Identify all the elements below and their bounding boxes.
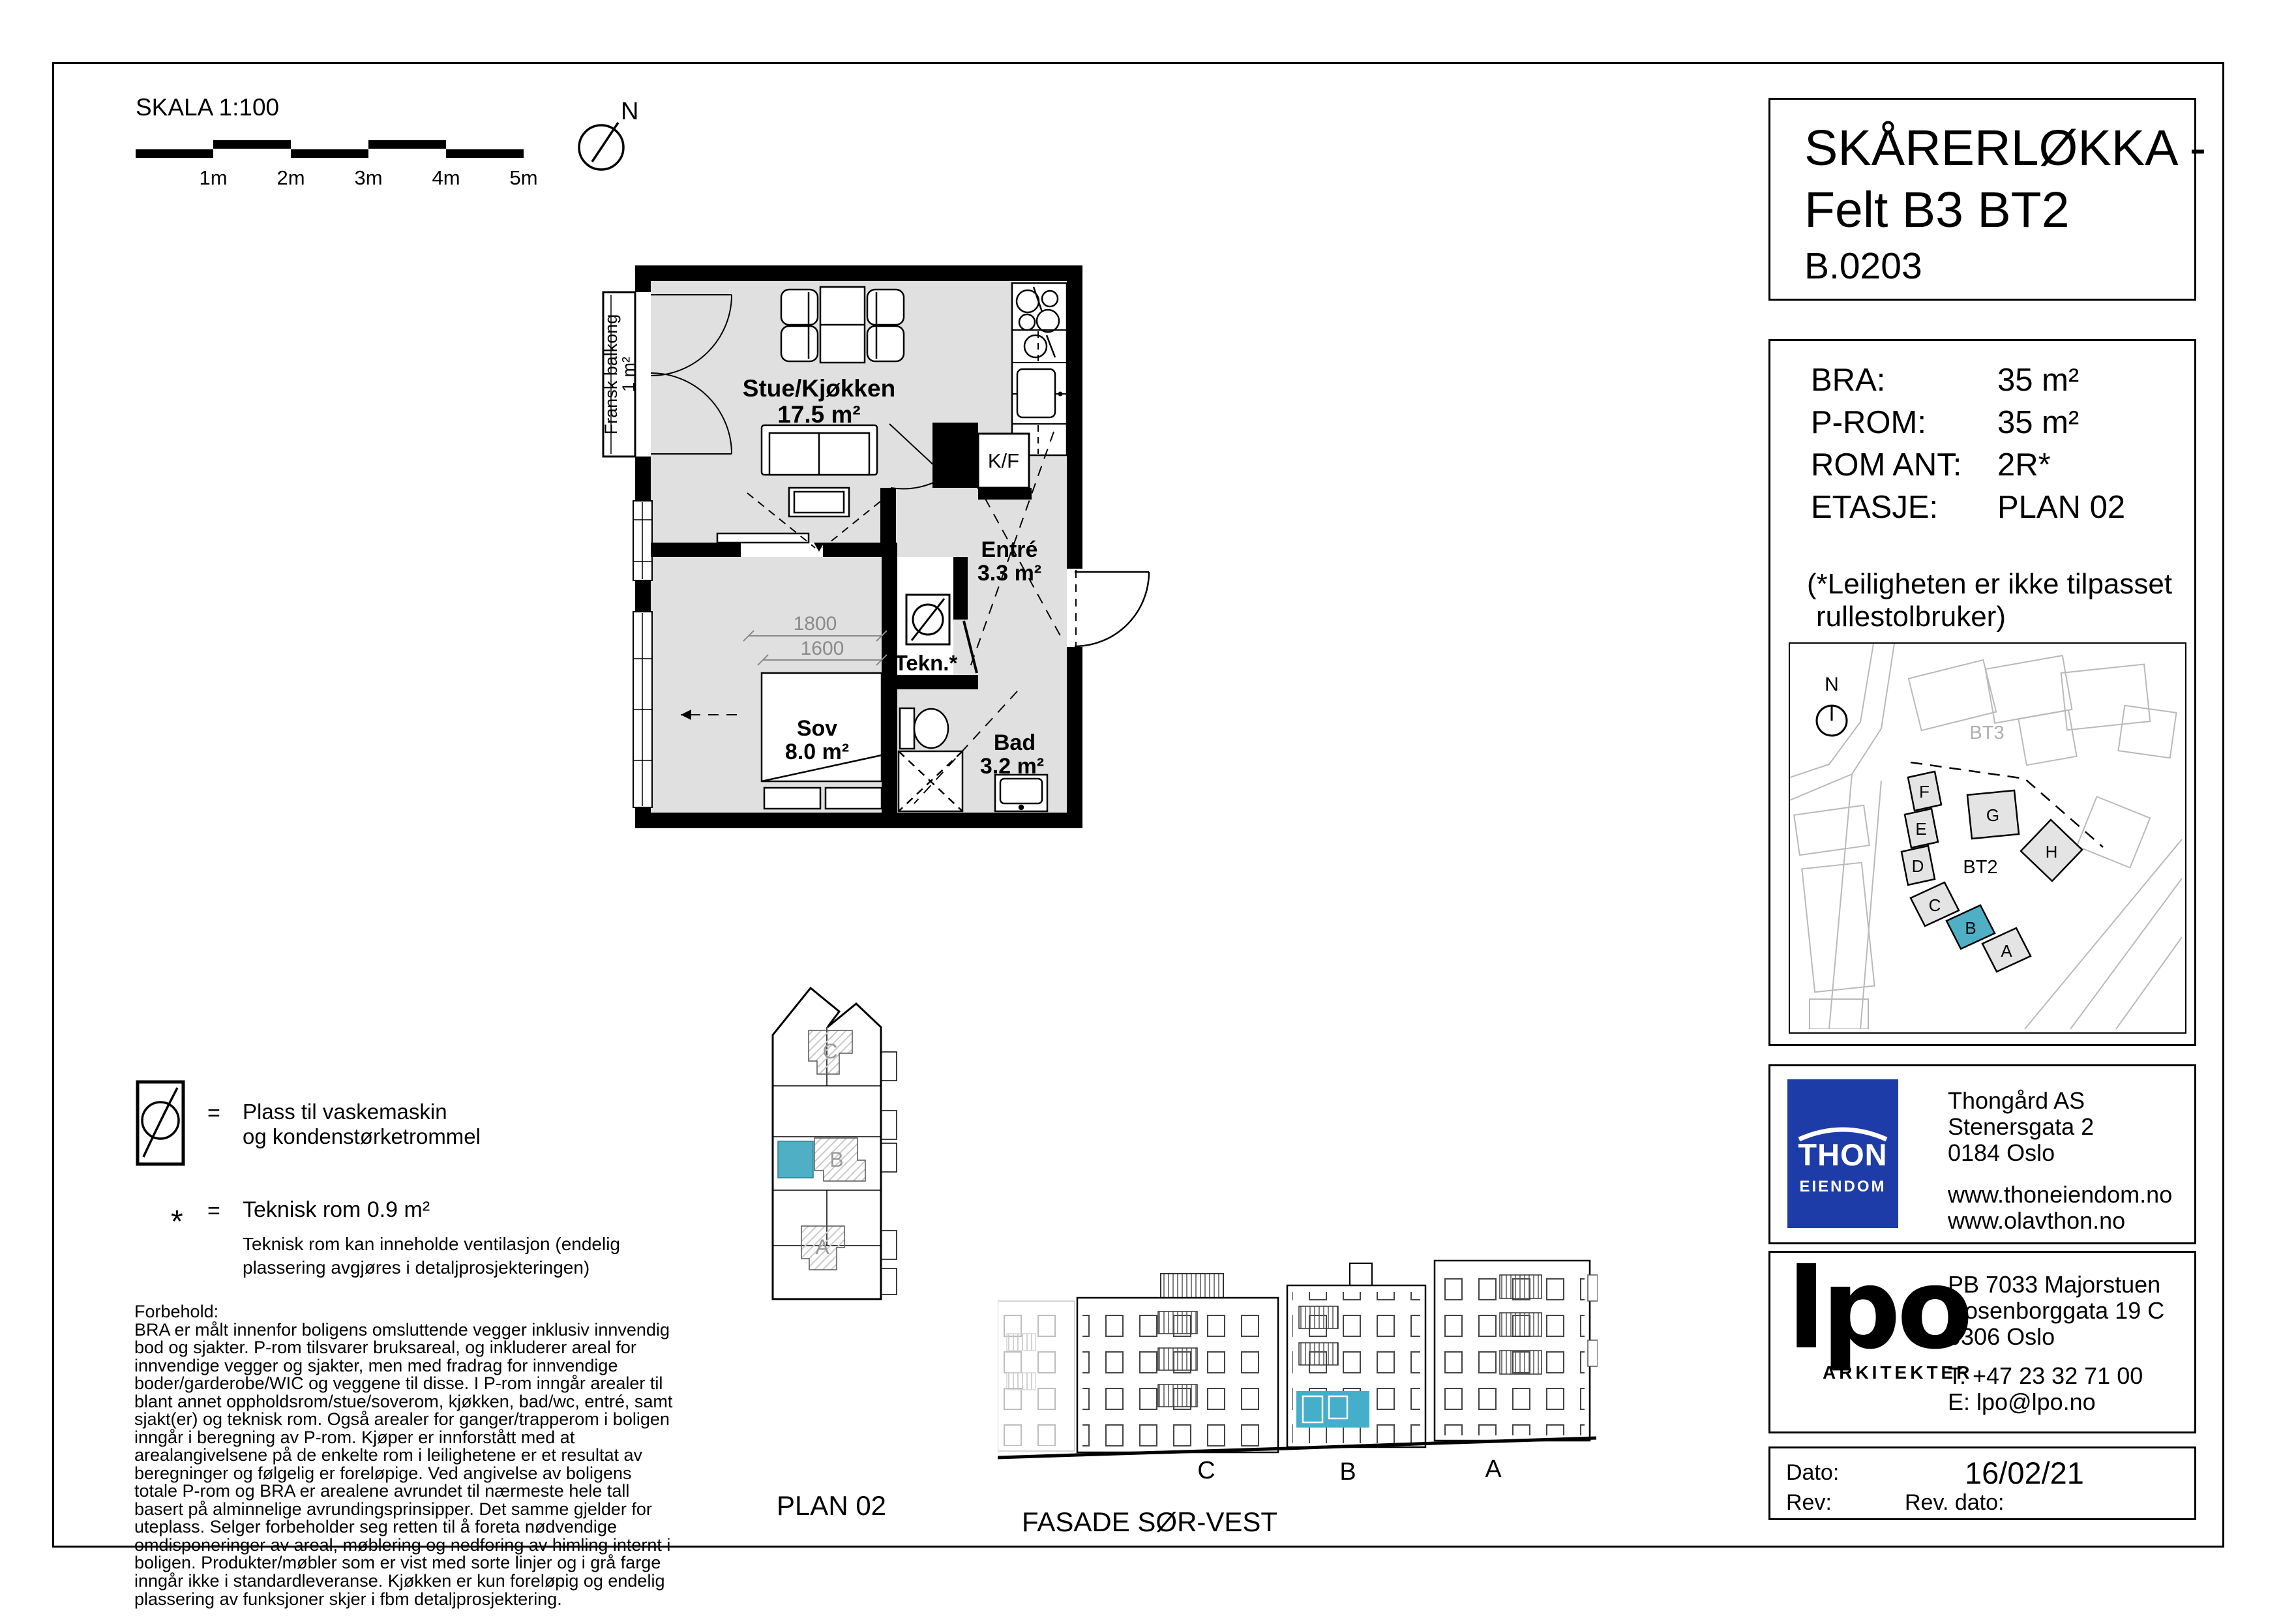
owner-addr2: 0184 Oslo (1948, 1139, 2055, 1167)
window (633, 612, 652, 807)
facade-b: B (1339, 1458, 1356, 1484)
wheelchair-note-1: (*Leiligheten er ikke tilpasset (1807, 568, 2172, 601)
dim-1600: 1600 (801, 638, 844, 659)
arrowhead (814, 543, 824, 552)
info-label-prom: P-ROM: (1811, 404, 1926, 441)
highlighted-apartment (778, 1141, 813, 1178)
key-plan-a: A (815, 1235, 829, 1259)
info-value-etasje: PLAN 02 (1997, 489, 2125, 526)
toilet-icon (900, 708, 948, 749)
facade-label: FASADE SØR-VEST (1022, 1506, 1277, 1538)
project-title-line2: Felt B3 BT2 (1804, 181, 2070, 239)
scale-tick-3m: 3m (342, 166, 395, 190)
room-label-entre: Entré (981, 537, 1038, 562)
info-value-bra: 35 m² (1997, 362, 2079, 398)
balcony-label: Fransk balkong 1 m² (603, 292, 635, 457)
key-plan: C B A (760, 975, 916, 1304)
site-plan-frame: BT3 BT2 F E D C B A G (1789, 642, 2186, 1034)
wheelchair-note-2: rullestolbruker) (1816, 601, 2006, 633)
legend-text-2b: Teknisk rom kan inneholde ventilasjon (e… (243, 1234, 620, 1255)
room-label-stue: Stue/Kjøkken (743, 375, 895, 402)
revision-block: Dato: 16/02/21 Rev: Rev. dato: (1768, 1446, 2196, 1520)
info-label-romant: ROM ANT: (1811, 447, 1961, 483)
disclaimer-heading: Forbehold: (134, 1303, 676, 1321)
architect-phone: T: +47 23 32 71 00 (1948, 1362, 2143, 1390)
dining-set (781, 287, 904, 363)
owner-name: Thongård AS (1948, 1087, 2085, 1115)
room-area-sov: 8.0 m² (785, 740, 849, 764)
tv-bench (789, 488, 849, 517)
room-area-bad: 3.2 m² (980, 754, 1044, 779)
architect-email: E: lpo@lpo.no (1948, 1388, 2096, 1416)
date-label: Dato: (1786, 1460, 1839, 1486)
site-plan: BT3 BT2 F E D C B A G (1790, 644, 2182, 1029)
site-letter-a: A (2001, 941, 2012, 961)
site-bt2: BT2 (1963, 857, 1997, 878)
disclaimer-body: BRA er målt innenfor boligens omsluttend… (134, 1321, 676, 1609)
site-letter-g: G (1986, 805, 1999, 825)
floor-plan: 1800 1600 Stue/Kjøkken 17.5 m² Entré 3.3… (587, 248, 1174, 848)
info-label-etasje: ETASJE: (1811, 489, 1938, 526)
facade-building-c (1077, 1274, 1278, 1452)
room-label-sov: Sov (797, 716, 837, 741)
facade-c: C (1197, 1457, 1215, 1484)
legend-text-1a: Plass til vaskemaskin (243, 1100, 447, 1124)
key-plan-label: PLAN 02 (756, 1490, 906, 1521)
entry-door (1075, 570, 1149, 646)
appliance-icon (1017, 369, 1055, 417)
site-letter-d: D (1912, 856, 1924, 876)
room-label-tekn: Tekn.* (895, 651, 958, 675)
architect-addr1: PB 7033 Majorstuen (1948, 1271, 2160, 1298)
owner-addr1: Stenersgata 2 (1948, 1113, 2094, 1141)
sliding-door (717, 533, 809, 543)
disclaimer: Forbehold: BRA er målt innenfor boligens… (134, 1303, 676, 1608)
owner-block: THON EIENDOM Thongård AS Stenersgata 2 0… (1768, 1064, 2196, 1244)
legend-text-2: Teknisk rom 0.9 m² (243, 1197, 430, 1223)
legend-text-1b: og kondenstørketrommel (243, 1124, 481, 1149)
legend-star: * (171, 1204, 183, 1240)
site-letter-b: B (1965, 918, 1976, 938)
thon-logo-sub: EIENDOM (1799, 1178, 1886, 1195)
north-arrow-icon (567, 97, 652, 181)
washing-machine-icon (906, 595, 949, 644)
info-value-romant: 2R* (1997, 447, 2051, 483)
drawing-sheet: SKALA 1:100 1m 2m 3m 4m 5m N (0, 0, 2296, 1618)
facade-drawing: C B A (998, 1236, 1598, 1484)
info-block: BRA: 35 m² P-ROM: 35 m² ROM ANT: 2R* ETA… (1768, 339, 2196, 1046)
room-area-entre: 3.3 m² (977, 561, 1041, 586)
north-label: N (621, 98, 638, 126)
rev-date-label: Rev. dato: (1905, 1490, 2004, 1516)
owner-web2: www.olavthon.no (1948, 1207, 2125, 1235)
owner-web1: www.thoneiendom.no (1948, 1181, 2172, 1208)
info-label-bra: BRA: (1811, 362, 1885, 398)
sofa (762, 425, 877, 475)
rev-label: Rev: (1786, 1490, 1832, 1516)
scale-tick-4m: 4m (420, 166, 472, 190)
architect-block: lpo ARKITEKTER PB 7033 Majorstuen Rosenb… (1768, 1251, 2196, 1433)
kitchen-counter (1012, 283, 1067, 455)
scale-tick-1m: 1m (187, 166, 239, 190)
site-north-label: N (1825, 674, 1839, 695)
thon-logo: THON EIENDOM (1787, 1079, 1898, 1228)
site-bt3: BT3 (1969, 723, 2004, 743)
facade-building-b (1287, 1263, 1425, 1447)
dim-1800: 1800 (794, 613, 837, 635)
washing-machine-legend-icon (136, 1080, 185, 1166)
window (633, 501, 652, 580)
unit-number: B.0203 (1804, 245, 1922, 288)
site-letter-f: F (1919, 782, 1930, 802)
lpo-logo: lpo (1787, 1245, 1969, 1374)
facade-building-a (1435, 1261, 1598, 1441)
date-value: 16/02/21 (1965, 1455, 2084, 1491)
room-label-bad: Bad (994, 730, 1036, 755)
site-letter-h: H (2046, 842, 2058, 861)
legend-eq-2: = (207, 1199, 220, 1224)
room-area-stue: 17.5 m² (777, 401, 861, 428)
scale-tick-5m: 5m (498, 166, 550, 190)
title-block: SKÅRERLØKKA - Felt B3 BT2 B.0203 (1768, 98, 2196, 301)
site-letter-e: E (1915, 819, 1926, 839)
key-plan-b: B (829, 1148, 843, 1171)
shower-icon (899, 751, 962, 811)
legend-text-2c: plassering avgjøres i detaljprosjekterin… (243, 1257, 589, 1278)
architect-addr3: 0306 Oslo (1948, 1323, 2055, 1351)
kf-label: K/F (988, 449, 1019, 472)
site-letter-c: C (1929, 895, 1941, 915)
scale-tick-2m: 2m (265, 166, 317, 190)
facade-a: A (1485, 1456, 1502, 1483)
scale-label: SKALA 1:100 (136, 94, 279, 121)
project-title-line1: SKÅRERLØKKA - (1804, 119, 2206, 177)
key-plan-c: C (822, 1040, 837, 1063)
architect-addr2: Rosenborggata 19 C (1948, 1297, 2164, 1325)
legend-eq-1: = (207, 1101, 220, 1126)
info-value-prom: 35 m² (1997, 404, 2079, 441)
thon-logo-text: THON (1798, 1137, 1887, 1172)
bath-sink-icon (995, 775, 1047, 811)
